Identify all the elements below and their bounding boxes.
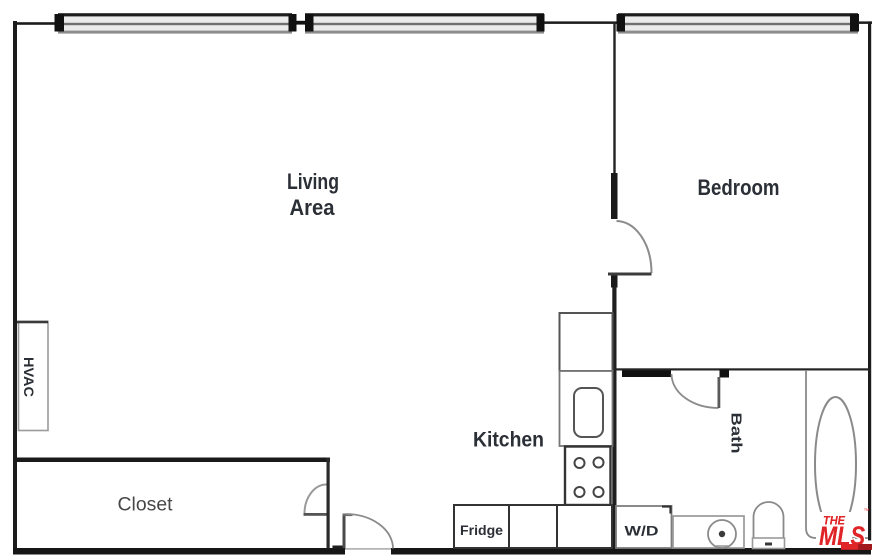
svg-text:Bedroom: Bedroom — [698, 175, 780, 200]
svg-text:Fridge: Fridge — [460, 522, 503, 538]
svg-text:Living: Living — [287, 169, 339, 194]
svg-text:Closet: Closet — [118, 495, 174, 516]
svg-text:W/D: W/D — [625, 523, 659, 539]
svg-text:HVAC: HVAC — [21, 357, 36, 397]
svg-text:Kitchen: Kitchen — [473, 428, 544, 452]
svg-text:™: ™ — [864, 508, 870, 515]
svg-text:Area: Area — [290, 195, 335, 220]
svg-text:Bath: Bath — [728, 413, 744, 454]
